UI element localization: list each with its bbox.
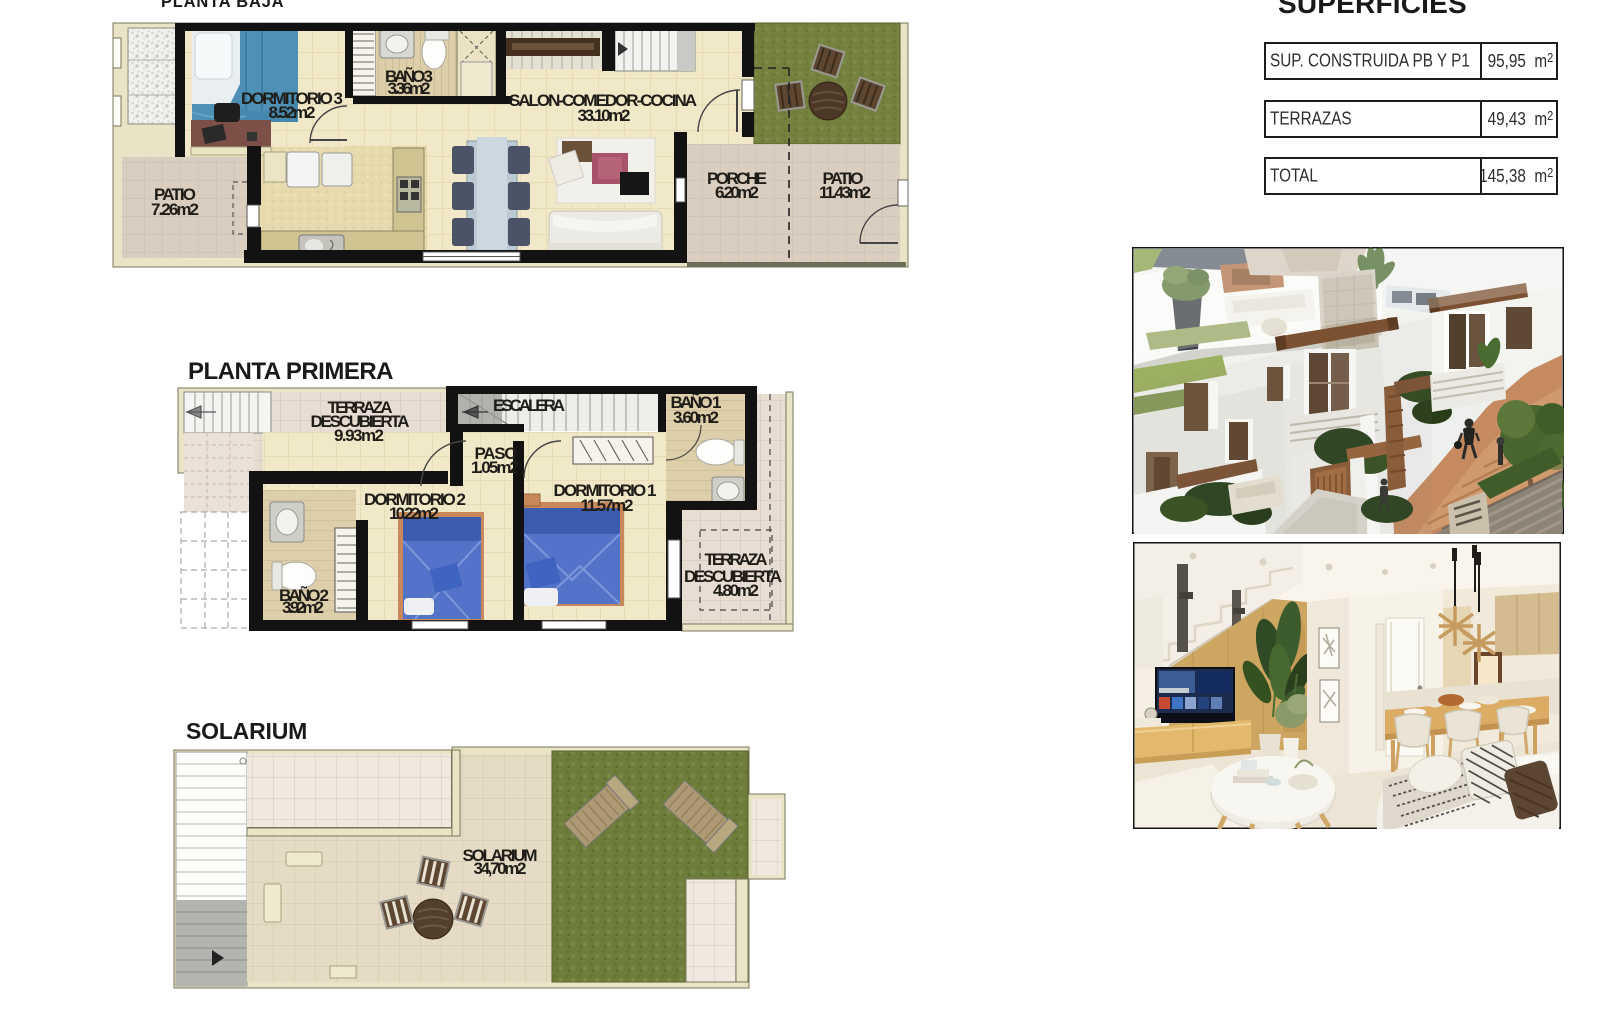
svg-text:8.52m2: 8.52m2 [269,103,316,122]
svg-text:1.05m2: 1.05m2 [471,458,519,477]
svg-text:7.26m2: 7.26m2 [151,200,199,219]
svg-text:3.36m2: 3.36m2 [388,79,431,98]
svg-text:11.43m2: 11.43m2 [819,183,871,202]
svg-text:3.92m2: 3.92m2 [282,598,324,617]
svg-text:10.22m2: 10.22m2 [389,504,439,523]
svg-text:6.20m2: 6.20m2 [715,183,759,202]
svg-text:11.57m2: 11.57m2 [581,496,634,515]
svg-text:3.60m2: 3.60m2 [673,408,719,427]
svg-text:9.93m2: 9.93m2 [334,426,384,445]
svg-text:34,70m2: 34,70m2 [474,859,527,878]
svg-text:4.80m2: 4.80m2 [713,581,759,600]
svg-text:ESCALERA: ESCALERA [493,396,565,415]
svg-text:33.10m2: 33.10m2 [578,106,631,125]
